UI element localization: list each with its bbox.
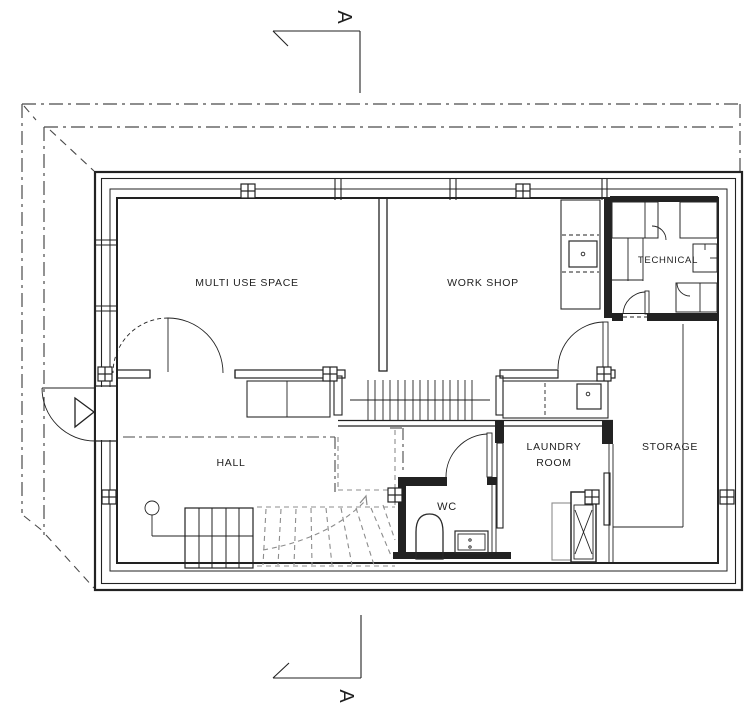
room-label-laundry-1: LAUNDRY — [527, 441, 582, 453]
ceiling-line-dashdot — [123, 428, 403, 492]
workshop-counter — [561, 200, 600, 309]
technical-doors — [623, 226, 690, 321]
corridor-counter — [503, 381, 608, 418]
room-label-storage: STORAGE — [642, 441, 698, 453]
entrance-door — [42, 386, 117, 441]
room-label-work-shop: WORK SHOP — [447, 277, 519, 289]
column-marker — [516, 184, 530, 198]
section-letter-top: A — [333, 10, 355, 24]
room-label-hall: HALL — [216, 457, 245, 469]
column-markers — [98, 184, 734, 504]
corridor-sink — [577, 384, 601, 409]
wc-door — [446, 433, 492, 477]
section-marker-bottom: A — [273, 615, 361, 703]
winder-stair-arrow — [360, 496, 367, 505]
entrance-arrow-icon — [75, 398, 94, 427]
winder-stair-dashed — [257, 430, 395, 566]
floor-plan-drawing: A A — [0, 0, 750, 711]
column-marker — [98, 367, 112, 381]
roof-corner-diagonals — [24, 106, 94, 588]
column-marker — [102, 490, 116, 504]
room-label-multi-use-space: MULTI USE SPACE — [195, 277, 298, 289]
doors — [42, 226, 690, 477]
column-marker — [323, 367, 337, 381]
wc-vanity — [455, 531, 488, 553]
column-marker — [720, 490, 734, 504]
hall-cabinet — [247, 381, 330, 417]
section-marker-top: A — [273, 10, 360, 93]
room-labels: MULTI USE SPACE WORK SHOP TECHNICAL HALL… — [195, 255, 698, 513]
section-letter-bottom: A — [335, 689, 357, 703]
newel-post — [145, 501, 159, 515]
hall-stair-block — [145, 501, 253, 568]
room-label-laundry-2: ROOM — [536, 457, 571, 469]
room-label-technical: TECHNICAL — [638, 255, 698, 266]
column-marker — [585, 490, 599, 504]
room-label-wc: WC — [437, 501, 457, 513]
workshop-sink — [569, 241, 597, 267]
column-marker — [597, 367, 611, 381]
column-marker — [388, 488, 402, 502]
floor-plan-page: { "drawing_type": "architectural floor p… — [0, 0, 750, 711]
column-marker — [241, 184, 255, 198]
main-staircase — [350, 380, 490, 420]
